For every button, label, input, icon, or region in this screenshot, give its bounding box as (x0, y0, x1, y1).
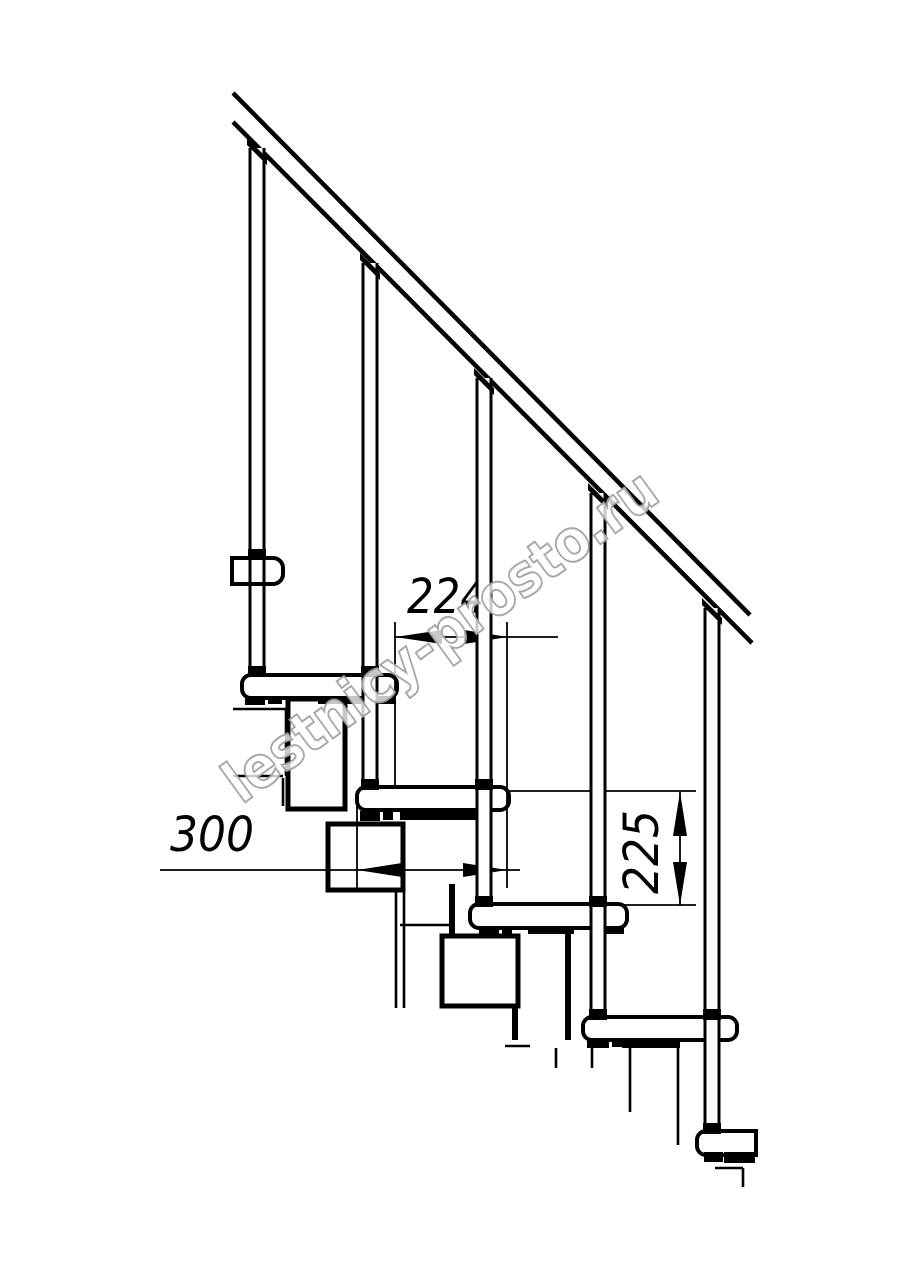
baluster-collar (589, 896, 607, 907)
module-box (442, 936, 518, 1006)
tread-mount-bracket (383, 811, 393, 820)
module-box (328, 824, 403, 890)
tread-mount-bracket (479, 926, 499, 935)
tread-mount-bracket (528, 926, 574, 934)
tread-mount-bracket (704, 1152, 723, 1162)
dim-rise-225: 225 (614, 810, 670, 894)
dim-module-300: 300 (170, 807, 254, 863)
dimension-arrowhead (673, 862, 687, 905)
baluster-5 (705, 608, 719, 1132)
baluster-body (591, 493, 605, 1018)
baluster-collar (361, 779, 379, 790)
dimension-arrowhead (673, 792, 687, 836)
baluster-body (250, 148, 264, 677)
baluster-4 (591, 493, 605, 1018)
tread-5 (697, 1131, 756, 1155)
baluster-collar (589, 1009, 607, 1020)
tread-mount-bracket (268, 696, 282, 704)
baluster-collar (703, 1123, 721, 1134)
tread-mount-bracket (245, 696, 265, 705)
tread-mount-bracket (400, 812, 488, 820)
tread-mount-bracket (502, 926, 512, 934)
baluster-collar (475, 896, 493, 907)
tread-mount-bracket (612, 1039, 622, 1047)
tread-mount-bracket (622, 1039, 680, 1048)
tread-mount-bracket (360, 811, 380, 821)
baluster-collar (475, 779, 493, 790)
baluster-collar (703, 1009, 721, 1020)
baluster-collar (248, 666, 266, 677)
baluster-body (705, 608, 719, 1132)
staircase-side-view-drawing: 224300225 lestnicy-prosto.ru (0, 0, 914, 1280)
baluster-1 (250, 148, 264, 677)
tread-mount-bracket (724, 1152, 755, 1163)
staircase-drawing-page: 224300225 lestnicy-prosto.ru (0, 0, 914, 1280)
tread-mount-bracket (587, 1039, 609, 1048)
